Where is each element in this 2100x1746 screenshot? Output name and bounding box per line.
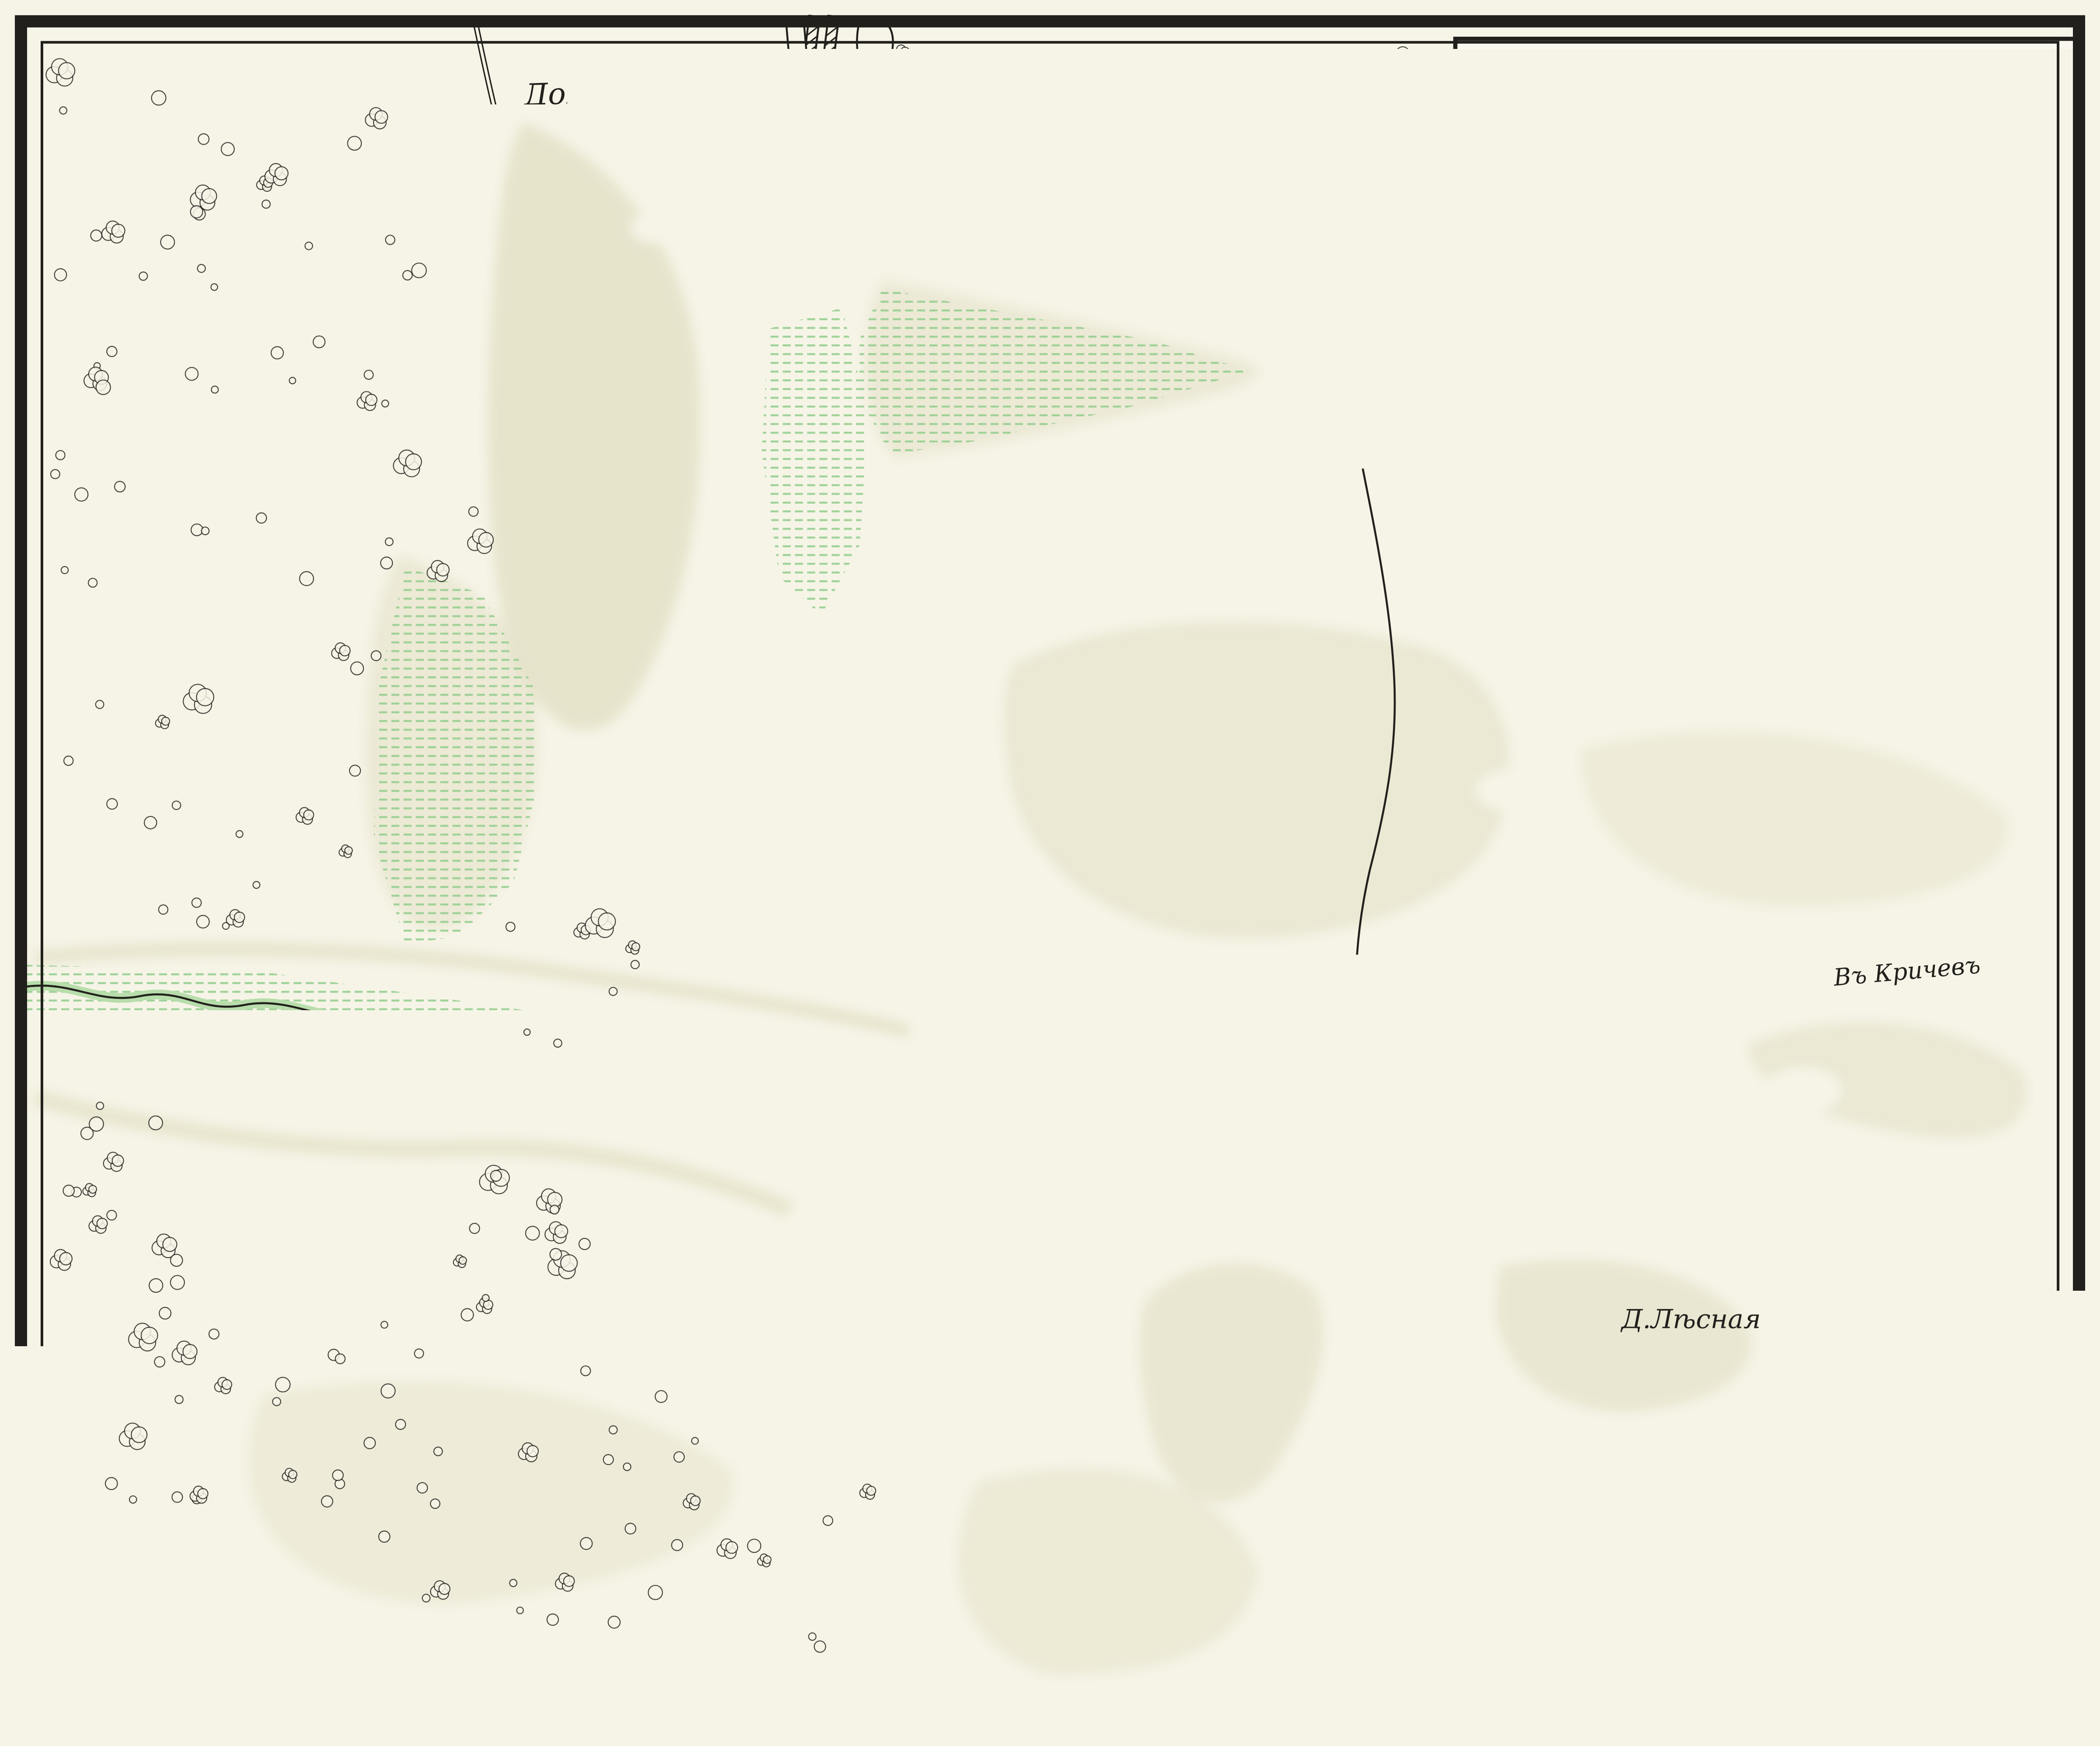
legend-swatch-russian <box>294 1562 323 1580</box>
map-subtitle: СРАЖЕНІЯ ПРИ Д.ЛѢСНОЙ <box>1325 217 2100 278</box>
map-date: 28 Сентября 1708 г. <box>1518 312 2014 359</box>
scale-tick-250: 250 <box>1749 418 1783 438</box>
legend-group-label: Войска <box>52 1592 150 1623</box>
scale-tick-500: 500 Саж. <box>1958 418 2046 438</box>
scale-tick-0: 0 <box>1507 418 1518 438</box>
label-lesnaya: Д.Лѣсная <box>1620 1304 1760 1335</box>
battle-map: ПЛАНЪ СРАЖЕНІЯ ПРИ Д.ЛѢСНОЙ 28 Сентября … <box>0 0 2100 1746</box>
credit-right: А.ИЛЬИНА, С.П.Б <box>1901 1711 2100 1730</box>
scale-label: Масштабъ <box>1688 385 1844 416</box>
label-dolgiy-mokh: Долгій Мохъ <box>522 71 723 113</box>
map-title: ПЛАНЪ <box>1588 101 1969 177</box>
legend-swatch-swedish <box>294 1628 334 1649</box>
legend-item-russian: Русскія <box>195 1561 292 1589</box>
credit-left: КАРТОГР. ЗАВ <box>1686 1711 1855 1730</box>
legend: Войска Русскія Шведскія <box>26 1527 362 1684</box>
mill-pond <box>1743 1115 1993 1311</box>
